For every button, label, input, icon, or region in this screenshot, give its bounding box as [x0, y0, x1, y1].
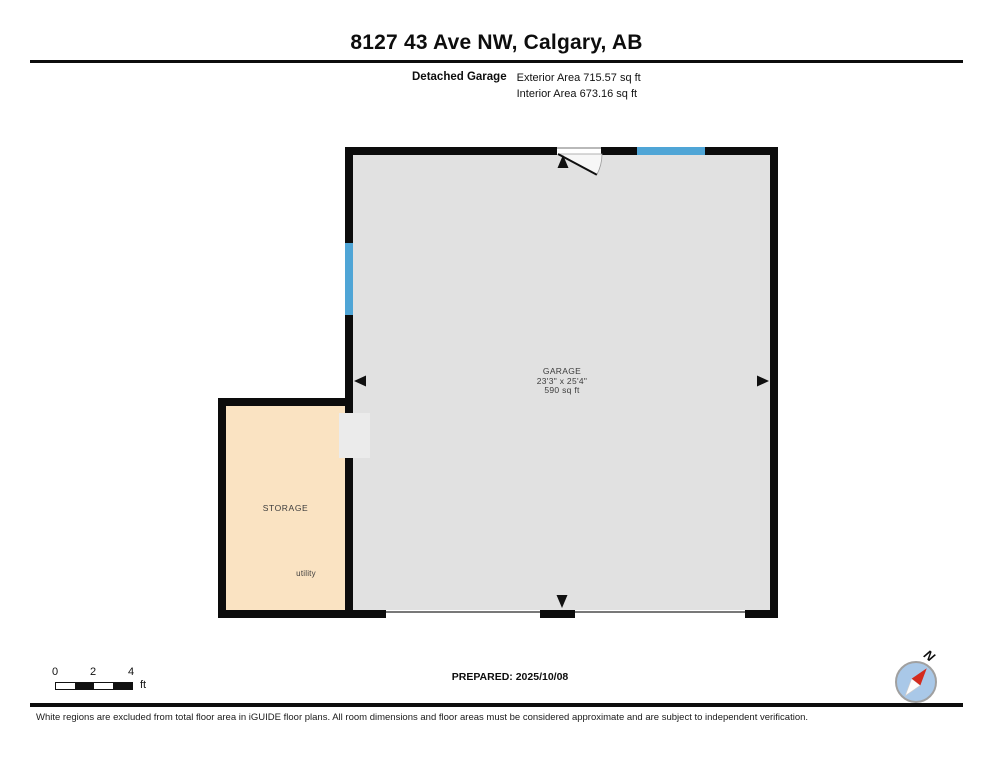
measurement-arrow-south-icon [557, 595, 568, 608]
utility-label: utility [285, 569, 327, 578]
floorplan-page: 8127 43 Ave NW, Calgary, AB Detached Gar… [0, 0, 993, 768]
storage-room-label: STORAGE [226, 503, 345, 513]
garage-room-label: GARAGE 23'3" x 25'4" 590 sq ft [462, 367, 662, 396]
measurement-arrow-west-icon [354, 376, 366, 387]
measurement-arrow-east-icon [757, 376, 769, 387]
floorplan-canvas: GARAGE 23'3" x 25'4" 590 sq ft STORAGE u… [0, 0, 993, 768]
garage-room-area: 590 sq ft [462, 386, 662, 396]
